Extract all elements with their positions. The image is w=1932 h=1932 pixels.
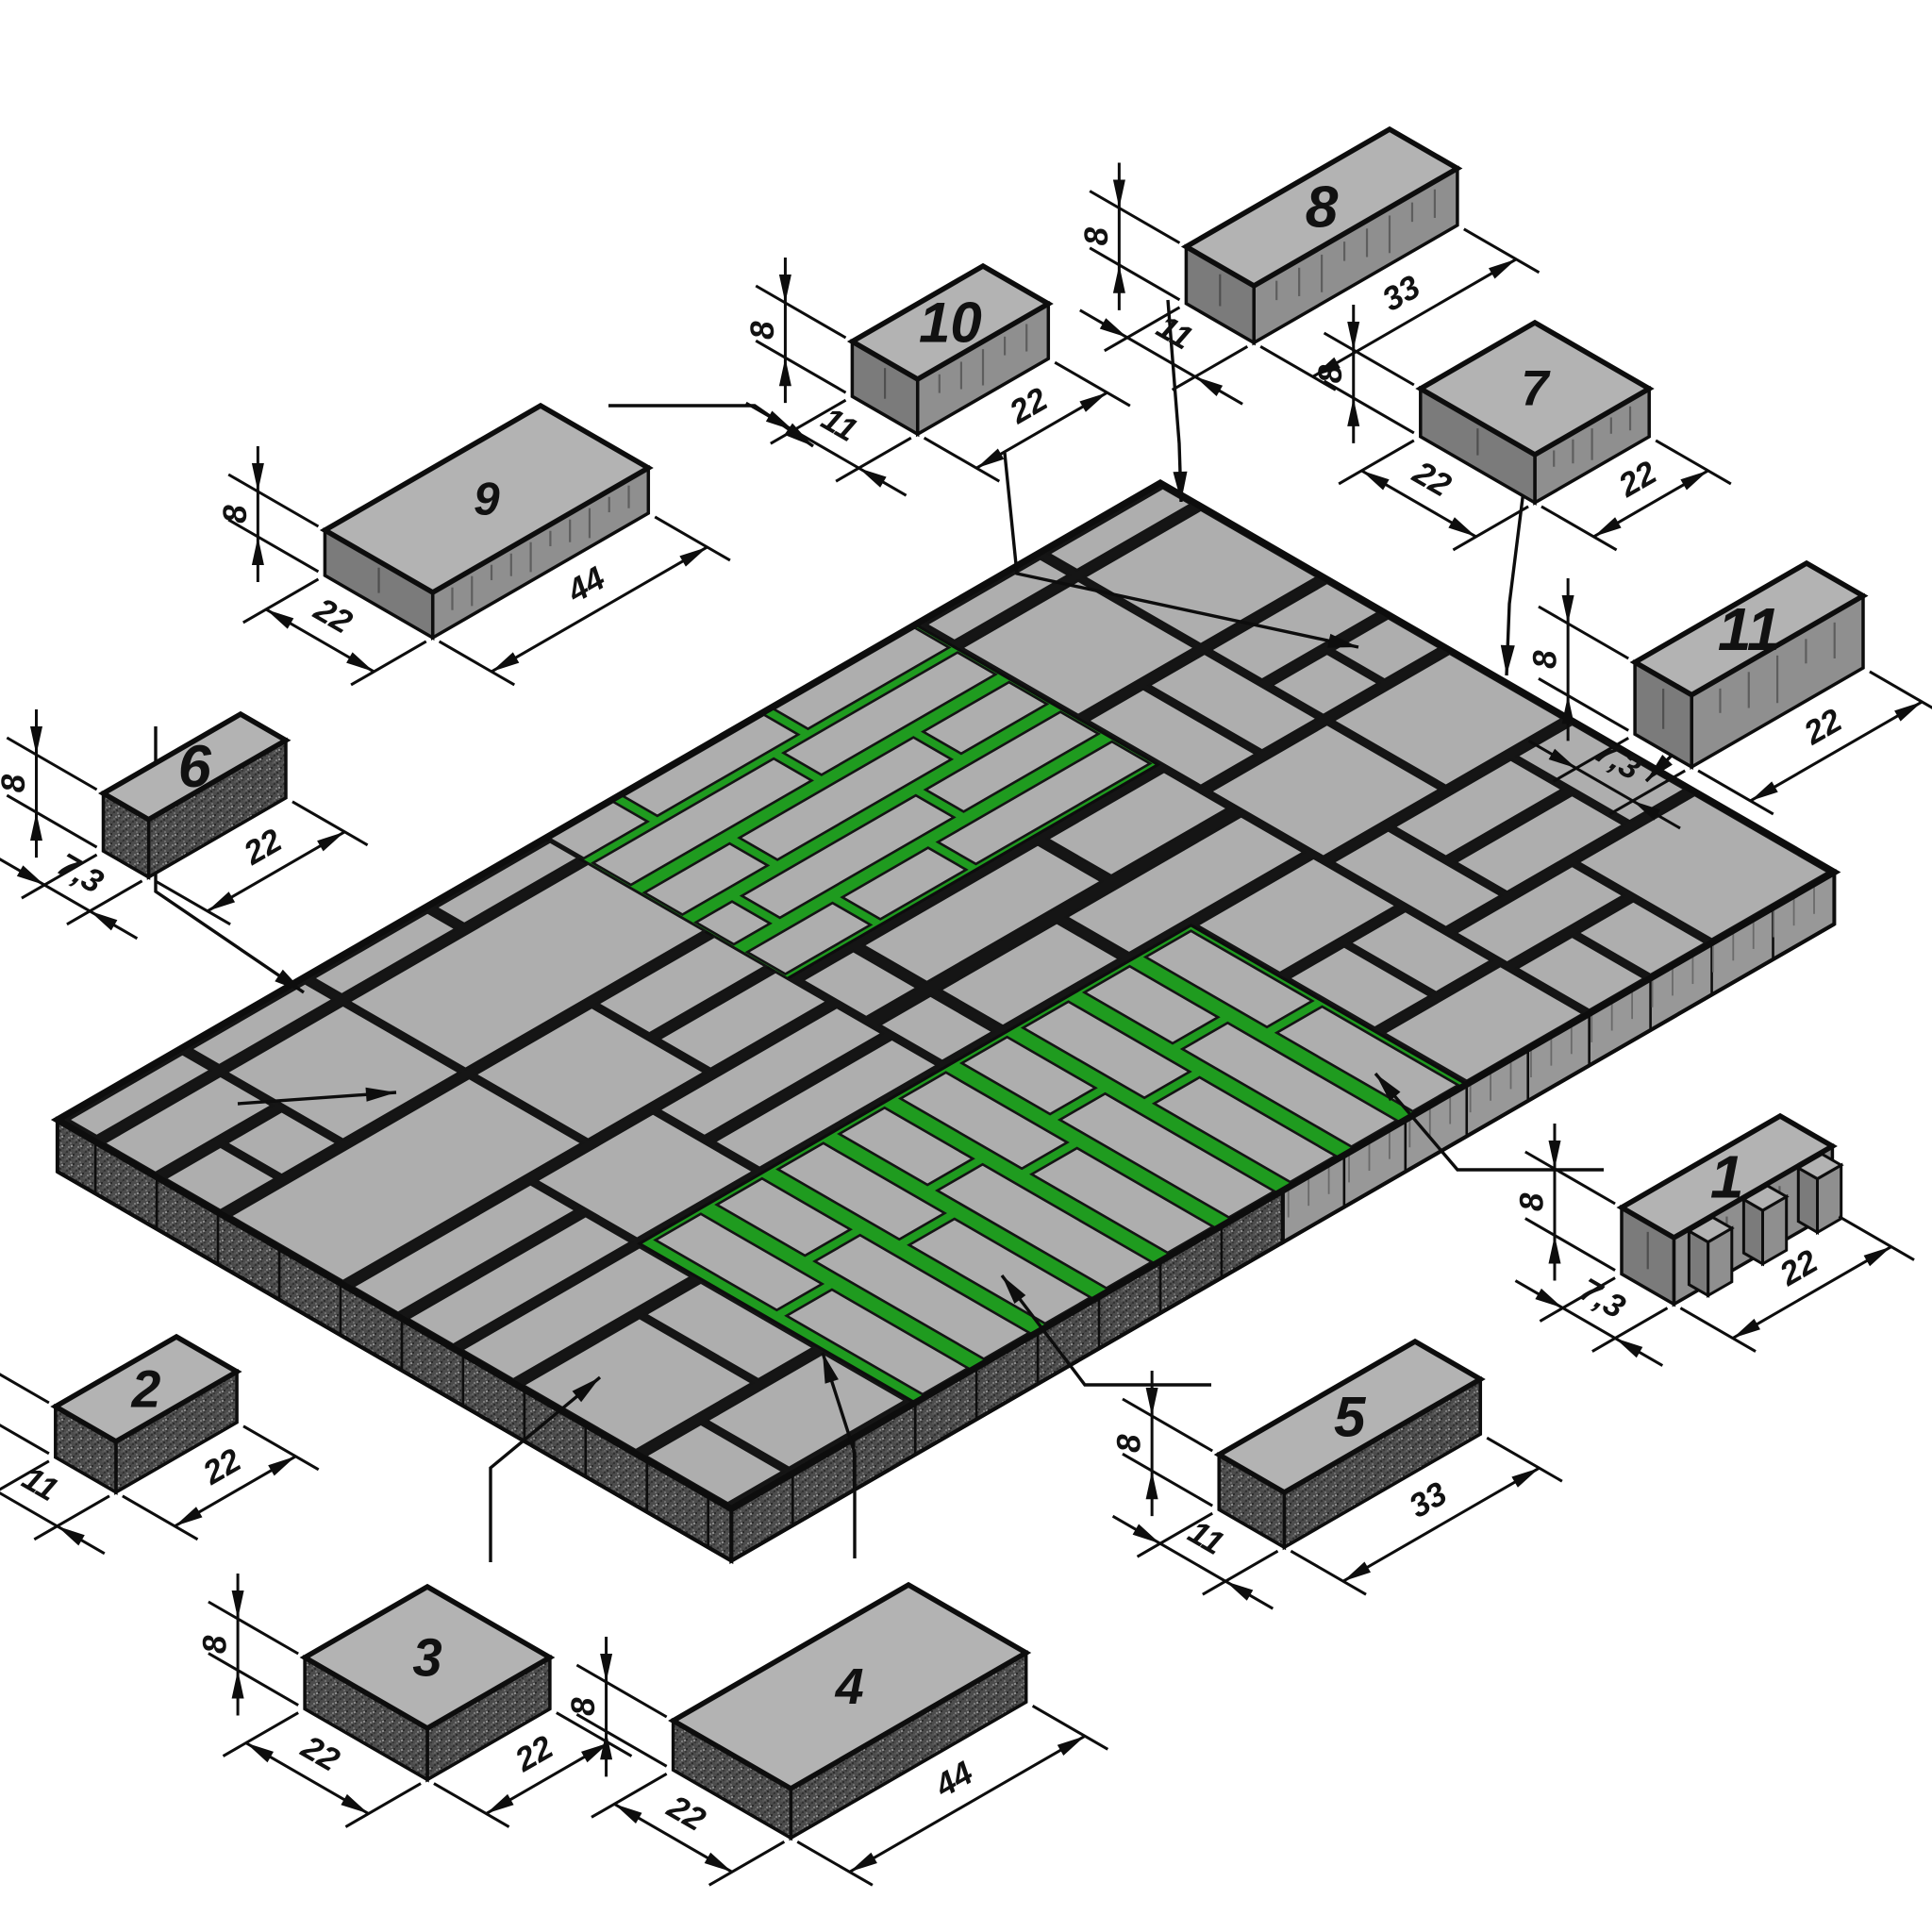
dim-height: 8: [1513, 1192, 1550, 1211]
dim-height: 8: [1527, 650, 1564, 669]
block-1-nub: [1689, 1217, 1731, 1295]
dim-width: 22: [294, 1728, 346, 1779]
dim-height: 8: [1111, 1434, 1148, 1453]
block-5: 581133: [1111, 1341, 1562, 1608]
diagram-canvas: 187,322281122382222482244581133687,32278…: [0, 0, 1932, 1932]
dim-length: 22: [1797, 702, 1849, 753]
block-4: 482244: [565, 1585, 1108, 1885]
block-4-label: 4: [835, 1658, 864, 1715]
dim-length: 22: [508, 1728, 560, 1779]
dim-width: 22: [660, 1788, 712, 1839]
block-5-label: 5: [1334, 1386, 1367, 1449]
dim-length: 44: [928, 1755, 979, 1806]
block-2: 281122: [0, 1323, 319, 1554]
dim-height: 8: [1078, 226, 1115, 245]
block-9: 982244: [217, 406, 730, 685]
dim-height: 8: [744, 321, 781, 340]
dim-height: 8: [0, 774, 32, 792]
block-2-label: 2: [131, 1360, 161, 1419]
block-6: 687,322: [0, 709, 368, 939]
dim-height: 8: [197, 1635, 234, 1654]
block-11-label: 11: [1718, 595, 1780, 663]
dim-length: 22: [237, 822, 289, 873]
dim-length: 33: [1376, 268, 1427, 319]
dim-width: 11: [1182, 1513, 1230, 1562]
block-6-label: 6: [178, 734, 212, 800]
block-9-label: 9: [474, 474, 500, 525]
dim-length: 22: [1611, 454, 1663, 505]
dim-width: 11: [815, 400, 863, 449]
paving-diagram: 187,322281122382222482244581133687,32278…: [0, 0, 1932, 1932]
dim-height: 8: [217, 505, 254, 524]
dim-width: 22: [1407, 454, 1458, 505]
dim-height: 8: [565, 1697, 602, 1716]
block-1: 187,322: [1513, 1116, 1914, 1366]
dim-length: 22: [196, 1441, 248, 1492]
block-10: 1081122: [744, 258, 1130, 495]
block-1-nub: [1743, 1186, 1786, 1264]
block-10-label: 10: [919, 291, 982, 355]
dim-length: 44: [560, 559, 611, 610]
dim-width: 11: [1150, 308, 1198, 358]
dim-width: 22: [308, 591, 359, 641]
dim-length: 33: [1403, 1474, 1454, 1525]
block-3-label: 3: [412, 1628, 441, 1688]
block-7-label: 7: [1521, 361, 1551, 417]
block-1-nub: [1798, 1154, 1840, 1232]
block-1-label: 1: [1710, 1143, 1744, 1211]
dim-length: 22: [1003, 380, 1055, 431]
dim-width: 11: [16, 1459, 64, 1508]
block-8-label: 8: [1306, 175, 1339, 241]
